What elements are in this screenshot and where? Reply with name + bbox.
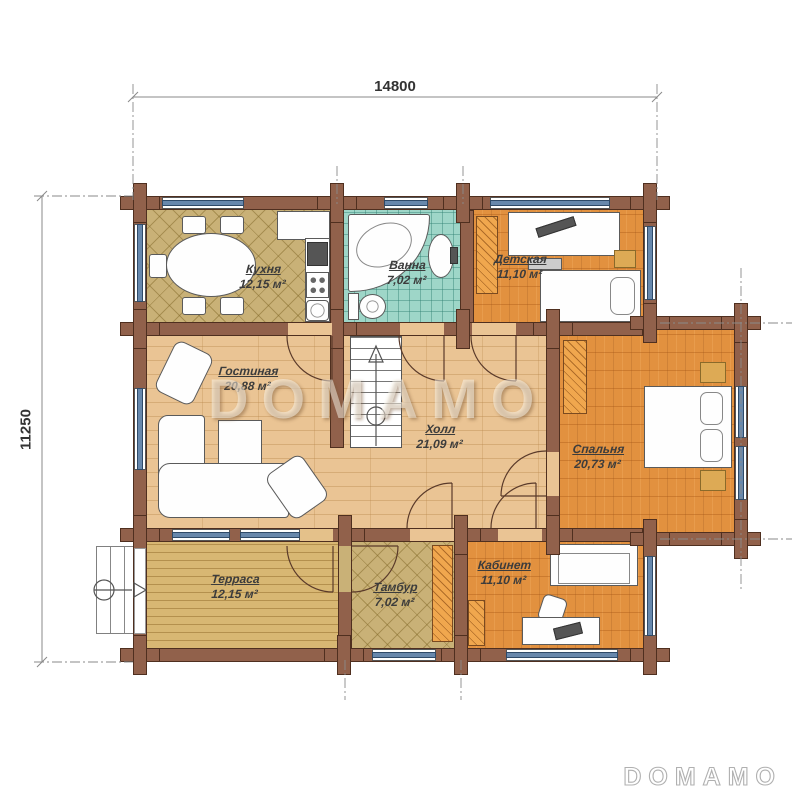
bedroom-nightstand bbox=[700, 362, 726, 383]
log-joint bbox=[630, 316, 670, 330]
window bbox=[384, 197, 428, 209]
window bbox=[644, 226, 656, 300]
window bbox=[134, 224, 146, 302]
log-joint bbox=[120, 648, 160, 662]
window bbox=[644, 556, 656, 636]
kitchen-corner-counter bbox=[277, 211, 330, 240]
window bbox=[506, 649, 618, 661]
room-label-bedroom: Спальня20,73 м² bbox=[547, 442, 649, 472]
log-joint bbox=[721, 316, 761, 330]
window bbox=[240, 529, 300, 541]
log-joint bbox=[120, 196, 160, 210]
dimension-width: 14800 bbox=[355, 78, 435, 95]
log-joint bbox=[324, 648, 364, 662]
log-joint bbox=[441, 648, 481, 662]
window bbox=[490, 197, 610, 209]
office-sofa-seat bbox=[558, 553, 630, 584]
dining-chair bbox=[220, 216, 244, 234]
log-joint bbox=[120, 528, 160, 542]
log-joint bbox=[721, 532, 761, 546]
window bbox=[735, 446, 747, 500]
room-label-bath: Ванна7,02 м² bbox=[356, 258, 458, 288]
dining-chair bbox=[149, 254, 167, 278]
log-joint bbox=[120, 322, 160, 336]
log-joint bbox=[317, 196, 357, 210]
entry-steps bbox=[96, 546, 138, 634]
dimension-height: 11250 bbox=[18, 390, 35, 470]
toilet-bowl bbox=[359, 294, 386, 319]
bed-pillow bbox=[700, 429, 723, 462]
door-opening bbox=[498, 529, 542, 541]
room-label-nursery: Детская11,10 м² bbox=[469, 252, 571, 282]
window bbox=[134, 388, 146, 470]
window bbox=[162, 197, 244, 209]
log-joint bbox=[533, 322, 573, 336]
room-label-terrace: Терраса12,15 м² bbox=[184, 572, 286, 602]
room-label-kitchen: Кухня12,15 м² bbox=[212, 262, 314, 292]
log-joint bbox=[630, 196, 670, 210]
brand-logo: DOMAMO bbox=[623, 763, 782, 792]
door-opening bbox=[288, 323, 332, 335]
dining-chair bbox=[182, 297, 206, 315]
room-label-vestibule: Тамбур7,02 м² bbox=[344, 580, 446, 610]
nursery-nightstand bbox=[614, 250, 636, 268]
nursery-pillow bbox=[610, 277, 635, 315]
dining-chair bbox=[182, 216, 206, 234]
dining-chair bbox=[220, 297, 244, 315]
room-label-office: Кабинет11,10 м² bbox=[453, 558, 555, 588]
corner-sofa-bottom bbox=[158, 463, 289, 518]
log-joint bbox=[630, 532, 670, 546]
window bbox=[172, 529, 230, 541]
door-opening bbox=[472, 323, 516, 335]
kitchen-sink bbox=[306, 300, 329, 321]
log-joint bbox=[443, 196, 483, 210]
terrace-side-opening bbox=[134, 548, 146, 634]
window bbox=[735, 386, 747, 438]
entry-door-sill bbox=[372, 649, 436, 661]
bed-pillow bbox=[700, 392, 723, 425]
bedroom-nightstand bbox=[700, 470, 726, 491]
toilet-tank bbox=[348, 293, 359, 320]
log-joint bbox=[630, 648, 670, 662]
door-opening bbox=[400, 323, 444, 335]
office-shelf bbox=[468, 600, 485, 646]
watermark: DOMAMO bbox=[208, 366, 608, 431]
door-opening bbox=[410, 529, 454, 541]
wall bbox=[546, 336, 560, 528]
floor-plan: 14800 11250 Кухня12,15 м² Ванна7,02 м² Д… bbox=[0, 0, 800, 800]
